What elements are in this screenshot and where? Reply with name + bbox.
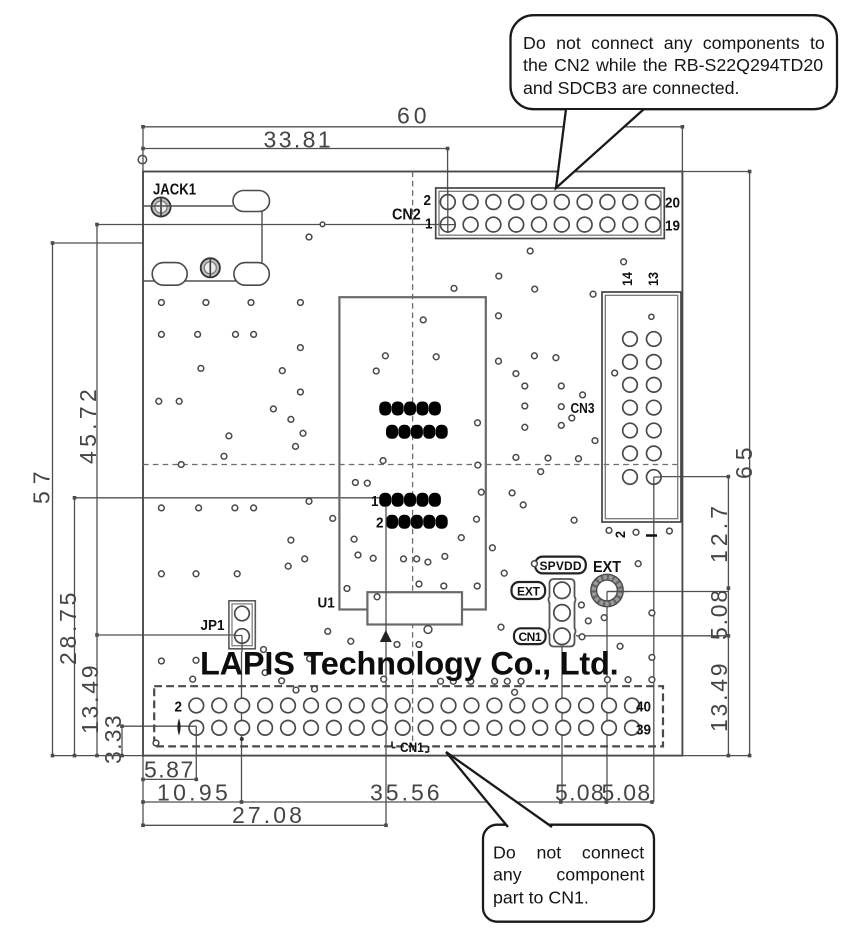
svg-text:JACK1: JACK1	[153, 181, 196, 198]
svg-text:14: 14	[619, 271, 635, 286]
svg-text:JP1: JP1	[201, 617, 225, 634]
svg-text:2: 2	[175, 699, 183, 716]
svg-text:5.08: 5.08	[706, 588, 732, 640]
svg-text:Do not connect: Do not connect	[493, 842, 644, 862]
svg-text:1: 1	[371, 493, 379, 510]
svg-text:39: 39	[636, 722, 651, 739]
svg-text:SPVDD: SPVDD	[540, 559, 582, 573]
svg-text:CN1: CN1	[400, 739, 424, 755]
svg-text:12.7: 12.7	[706, 502, 732, 563]
svg-text:EXT: EXT	[517, 585, 541, 599]
svg-text:57: 57	[29, 464, 55, 504]
svg-text:28.75: 28.75	[55, 589, 81, 665]
svg-text:33.81: 33.81	[264, 127, 334, 153]
svg-text:CN1: CN1	[519, 630, 542, 644]
svg-text:LAPIS Technology Co., Ltd.: LAPIS Technology Co., Ltd.	[200, 646, 619, 682]
svg-text:20: 20	[665, 195, 680, 212]
svg-text:5.08: 5.08	[602, 780, 652, 806]
svg-text:U1: U1	[318, 595, 335, 612]
svg-text:65: 65	[731, 441, 757, 479]
svg-text:13.49: 13.49	[706, 661, 732, 732]
svg-text:CN2: CN2	[392, 206, 421, 224]
svg-text:40: 40	[636, 699, 651, 716]
svg-text:and SDCB3 are connected.: and SDCB3 are connected.	[523, 78, 739, 98]
svg-text:27.08: 27.08	[232, 802, 305, 828]
svg-text:13: 13	[645, 272, 661, 286]
svg-text:3.33: 3.33	[100, 714, 126, 764]
svg-text:EXT: EXT	[593, 558, 622, 576]
svg-text:35.56: 35.56	[370, 780, 443, 806]
svg-text:part to CN1.: part to CN1.	[493, 888, 589, 908]
svg-text:2: 2	[612, 531, 628, 538]
svg-text:CN3: CN3	[571, 400, 595, 417]
svg-text:10.95: 10.95	[157, 780, 231, 806]
svg-text:Do not connect any components: Do not connect any components to	[523, 33, 825, 53]
svg-text:2: 2	[424, 192, 432, 209]
svg-text:1: 1	[425, 216, 433, 233]
svg-text:the CN2 while the RB-S22Q294TD: the CN2 while the RB-S22Q294TD20	[523, 55, 823, 75]
svg-text:60: 60	[397, 103, 431, 129]
svg-text:19: 19	[665, 218, 680, 235]
svg-text:any component: any component	[493, 865, 644, 885]
svg-text:45.72: 45.72	[75, 385, 101, 464]
svg-text:2: 2	[376, 515, 384, 532]
